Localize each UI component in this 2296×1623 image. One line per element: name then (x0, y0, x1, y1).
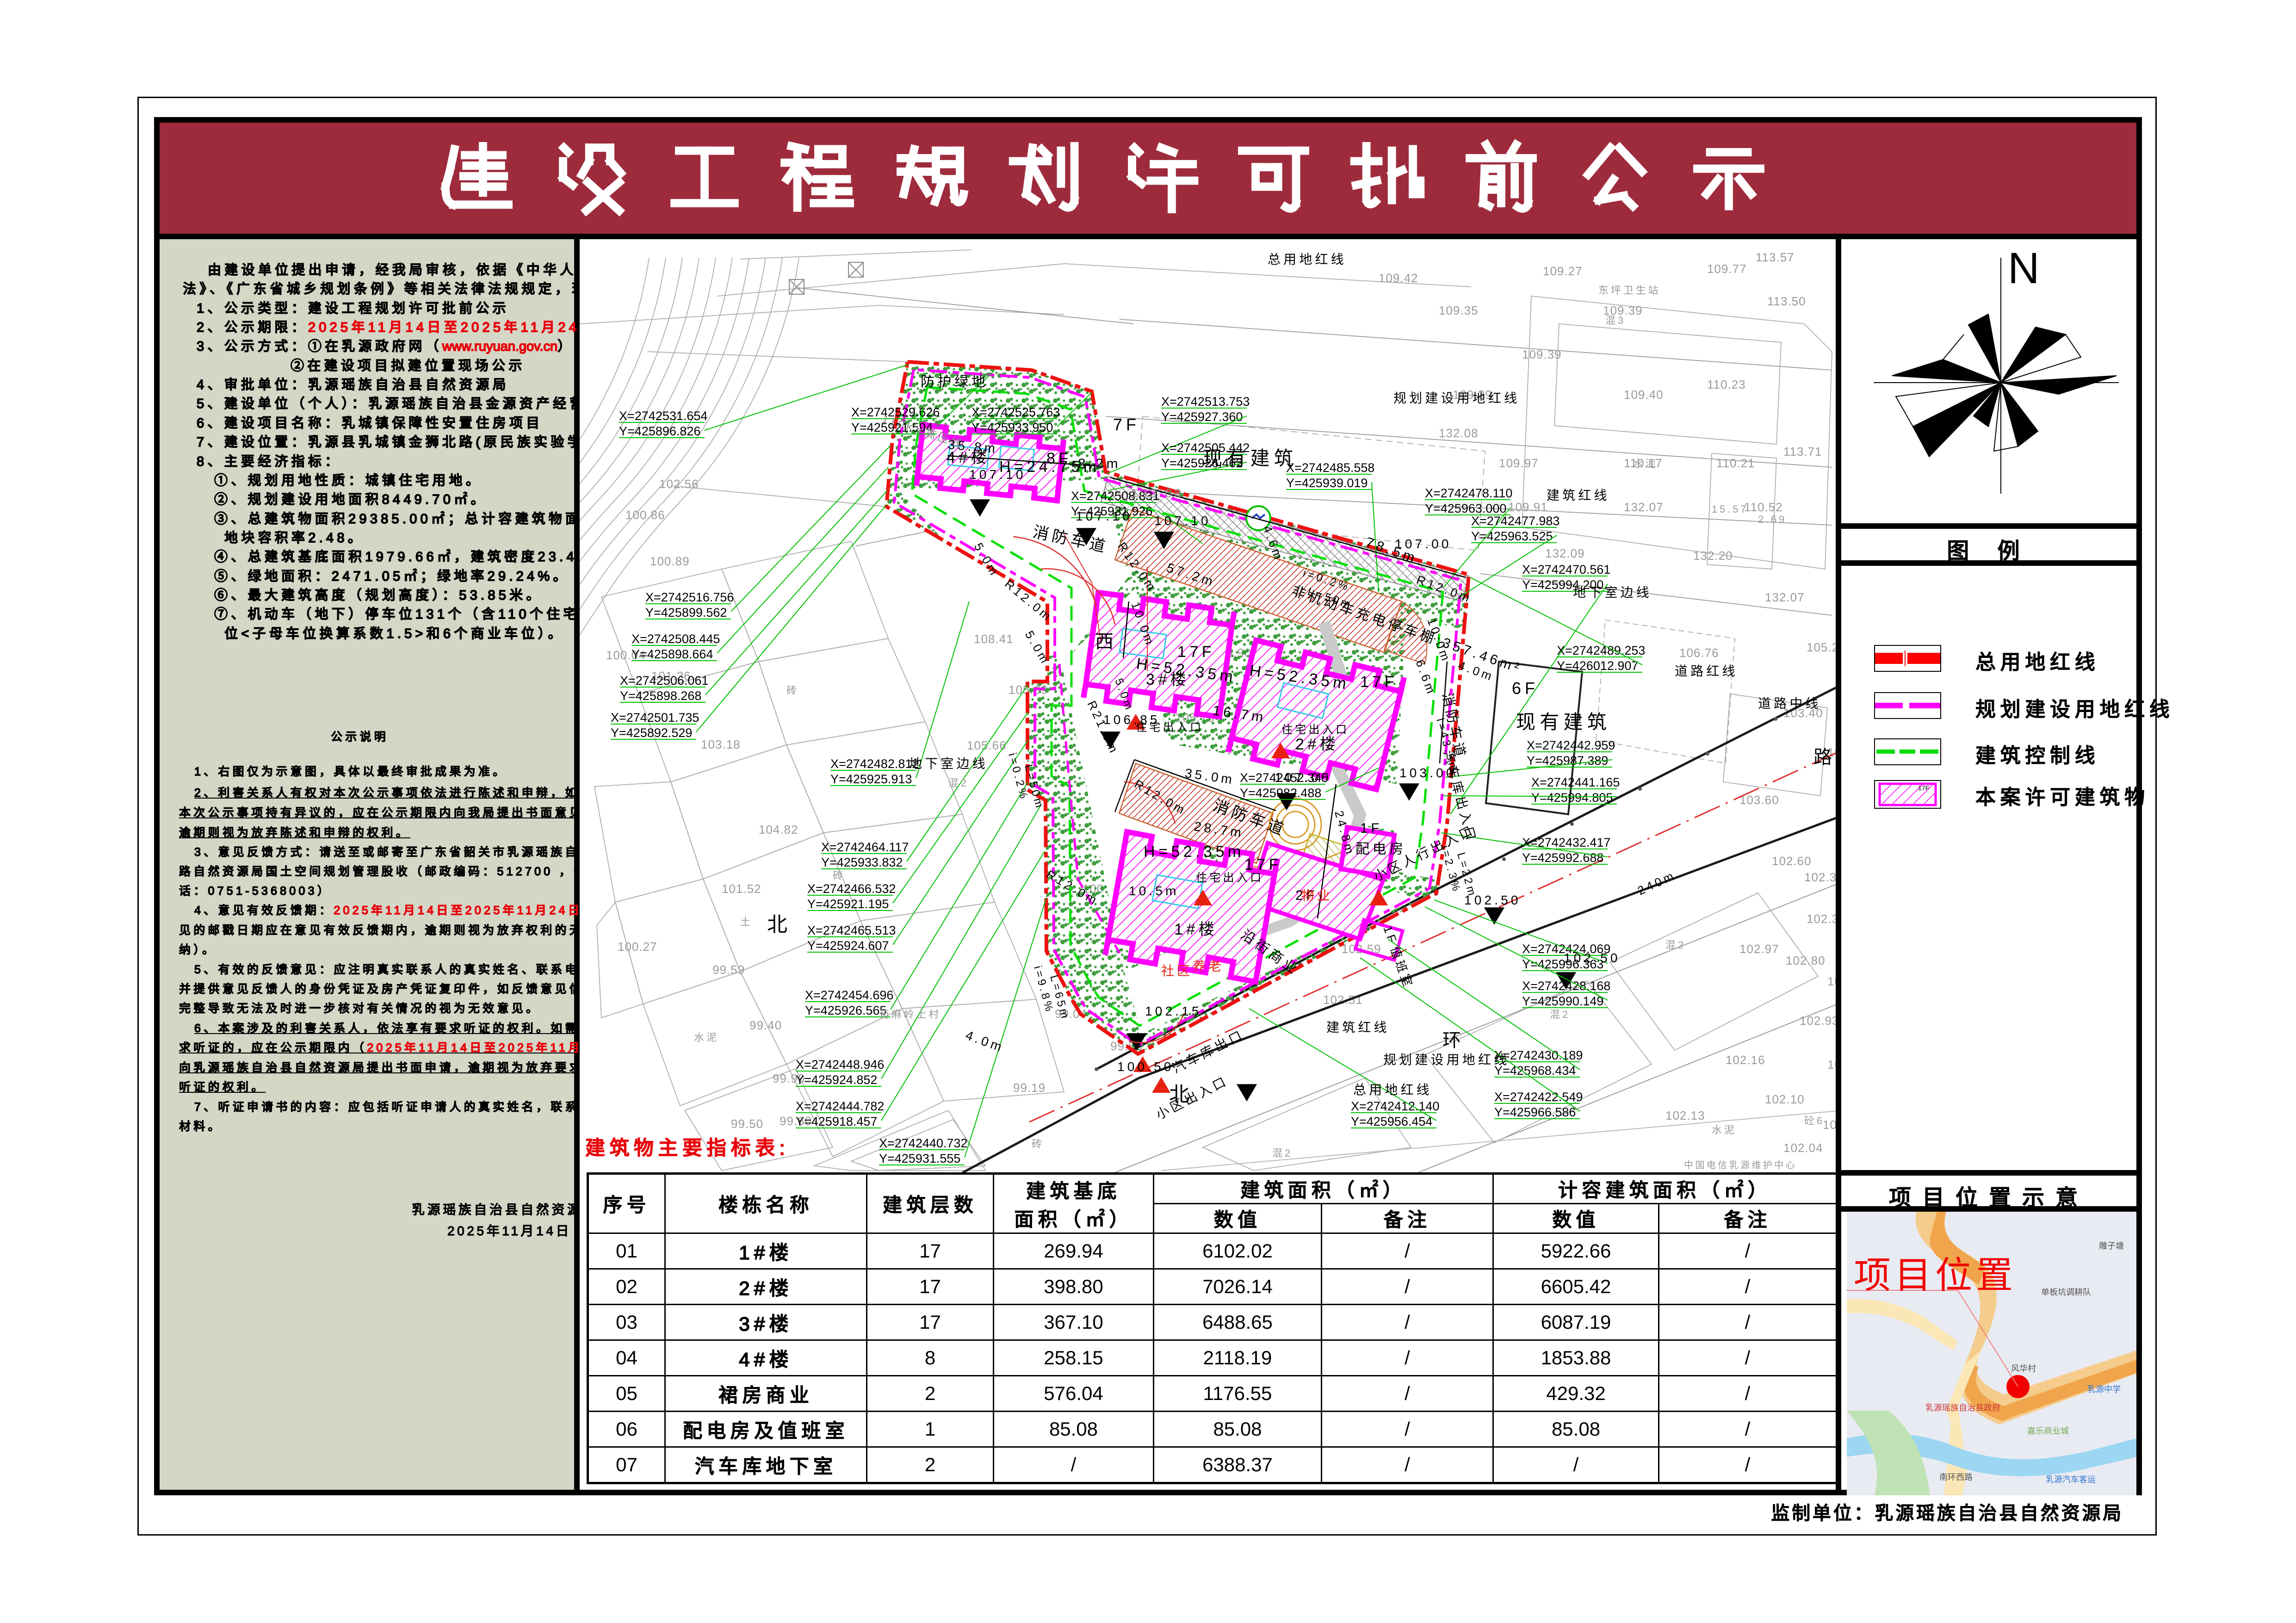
svg-text:2.69: 2.69 (1758, 514, 1787, 525)
svg-text:砖: 砖 (786, 685, 799, 696)
svg-text:107.00: 107.00 (1275, 770, 1331, 785)
svg-text:109.77: 109.77 (1707, 262, 1747, 276)
svg-text:Y=426012.907: Y=426012.907 (1557, 659, 1638, 673)
svg-text:17F: 17F (1360, 673, 1398, 691)
svg-text:混3: 混3 (1605, 315, 1626, 326)
svg-text:住宅出入口: 住宅出入口 (1281, 724, 1349, 736)
svg-text:Y=425899.562: Y=425899.562 (645, 606, 727, 619)
svg-text:10.5m: 10.5m (1129, 884, 1179, 898)
svg-text:混2: 混2 (948, 777, 969, 789)
svg-text:17F: 17F (1177, 643, 1215, 661)
svg-text:乳源瑶族自治县政府: 乳源瑶族自治县政府 (1925, 1403, 2000, 1412)
svg-text:108.41: 108.41 (974, 632, 1014, 646)
svg-text:102.51: 102.51 (1323, 993, 1363, 1007)
svg-text:防护绿地: 防护绿地 (921, 374, 988, 390)
svg-text:102.97: 102.97 (1739, 942, 1779, 956)
svg-text:Y=425927.360: Y=425927.360 (1161, 410, 1243, 424)
svg-text:X=2742454.696: X=2742454.696 (805, 988, 893, 1002)
svg-text:养老: 养老 (1193, 959, 1224, 973)
svg-text:4.0m: 4.0m (964, 1028, 1006, 1055)
svg-text:X=2742432.417: X=2742432.417 (1522, 836, 1610, 849)
svg-text:土: 土 (740, 916, 753, 928)
svg-text:100.50: 100.50 (1117, 1059, 1174, 1074)
svg-text:15.57: 15.57 (1712, 503, 1748, 515)
svg-text:Y=425924.607: Y=425924.607 (807, 939, 889, 953)
svg-text:132.20: 132.20 (1693, 549, 1733, 563)
svg-text:109.27: 109.27 (1543, 264, 1583, 278)
svg-text:嘉乐商业城: 嘉乐商业城 (2027, 1426, 2069, 1436)
svg-text:X=2742516.756: X=2742516.756 (645, 590, 734, 604)
svg-text:南环西路: 南环西路 (1939, 1473, 1973, 1482)
svg-text:Y=425987.389: Y=425987.389 (1527, 754, 1608, 768)
svg-text:X=2742422.549: X=2742422.549 (1494, 1090, 1583, 1104)
svg-text:项目位置: 项目位置 (1854, 1255, 2017, 1296)
svg-text:107.10: 107.10 (1154, 514, 1211, 528)
svg-text:Y=425925.913: Y=425925.913 (830, 772, 912, 786)
svg-text:102.15: 102.15 (1145, 1004, 1202, 1018)
svg-text:102.16: 102.16 (1726, 1053, 1765, 1067)
svg-text:106.85: 106.85 (1103, 712, 1160, 727)
svg-text:109.39: 109.39 (1522, 347, 1562, 361)
svg-text:中国电信乳源维护中心: 中国电信乳源维护中心 (1684, 1160, 1797, 1171)
svg-text:102.13: 102.13 (1665, 1109, 1705, 1122)
svg-text:Y=425966.586: Y=425966.586 (1494, 1105, 1576, 1119)
svg-text:总用地红线: 总用地红线 (1353, 1083, 1432, 1097)
svg-text:102.04: 102.04 (1783, 1141, 1823, 1155)
svg-text:110.52: 110.52 (1744, 500, 1783, 514)
svg-text:Y=425933.832: Y=425933.832 (821, 855, 903, 869)
svg-text:H=52.35m: H=52.35m (1144, 843, 1244, 861)
svg-text:109.91: 109.91 (1508, 500, 1548, 514)
svg-text:X=2742470.561: X=2742470.561 (1522, 563, 1610, 576)
svg-text:17F: 17F (1244, 856, 1282, 873)
svg-text:道路红线: 道路红线 (1675, 664, 1738, 678)
svg-text:X=2742513.753: X=2742513.753 (1161, 395, 1250, 409)
svg-text:X=2742412.140: X=2742412.140 (1351, 1099, 1439, 1113)
svg-text:1#楼: 1#楼 (1174, 921, 1218, 938)
svg-text:7F: 7F (1113, 415, 1140, 434)
svg-text:109.42: 109.42 (1379, 271, 1418, 285)
svg-text:Y=425896.826: Y=425896.826 (619, 424, 700, 438)
svg-text:1F: 1F (1360, 821, 1382, 836)
svg-text:Y=425990.149: Y=425990.149 (1522, 994, 1603, 1008)
svg-text:102.93: 102.93 (1800, 1014, 1839, 1028)
svg-text:100.89: 100.89 (650, 554, 690, 568)
svg-text:单板坑调耕队: 单板坑调耕队 (2041, 1288, 2091, 1297)
svg-text:Y=425963.525: Y=425963.525 (1471, 529, 1553, 543)
svg-text:砖: 砖 (1032, 1138, 1044, 1150)
svg-text:102.50: 102.50 (1564, 951, 1621, 965)
svg-text:X=2742501.735: X=2742501.735 (611, 711, 699, 725)
svg-text:113.57: 113.57 (1756, 250, 1795, 264)
svg-text:风华村: 风华村 (2011, 1364, 2036, 1373)
svg-text:住宅出入口: 住宅出入口 (1196, 872, 1263, 884)
svg-text:102.10: 102.10 (1765, 1092, 1805, 1106)
svg-text:X=2742428.168: X=2742428.168 (1522, 979, 1610, 993)
svg-text:现有建筑: 现有建筑 (1203, 447, 1298, 469)
svg-text:水泥: 水泥 (694, 1032, 719, 1043)
svg-text:102.60: 102.60 (1772, 854, 1812, 868)
svg-text:107.10: 107.10 (969, 467, 1026, 482)
svg-text:Y=425892.529: Y=425892.529 (611, 726, 692, 740)
svg-text:17F: 17F (1918, 784, 1929, 792)
svg-text:100.27: 100.27 (618, 940, 657, 954)
svg-text:X=2742508.445: X=2742508.445 (631, 632, 720, 646)
svg-text:Y=425898.268: Y=425898.268 (620, 689, 701, 703)
svg-text:109.97: 109.97 (1499, 456, 1539, 470)
svg-text:109.40: 109.40 (1624, 388, 1664, 402)
svg-text:X=2742440.732: X=2742440.732 (879, 1136, 967, 1150)
svg-text:西: 西 (1095, 632, 1118, 652)
svg-text:99.59: 99.59 (712, 963, 745, 977)
svg-text:水泥: 水泥 (1633, 458, 1658, 470)
svg-text:107.10: 107.10 (1076, 509, 1133, 523)
svg-text:X=2742485.558: X=2742485.558 (1286, 461, 1374, 475)
svg-text:北: 北 (767, 913, 792, 936)
svg-text:113.71: 113.71 (1783, 445, 1822, 458)
svg-text:Y=425924.852: Y=425924.852 (796, 1073, 877, 1087)
svg-text:Y=425926.565: Y=425926.565 (805, 1004, 886, 1017)
svg-text:Y=425939.019: Y=425939.019 (1286, 476, 1368, 490)
svg-text:Y=425994.805: Y=425994.805 (1531, 791, 1613, 805)
svg-text:混2: 混2 (1550, 1009, 1570, 1020)
svg-text:132.09: 132.09 (1545, 546, 1585, 560)
svg-text:现有建筑: 现有建筑 (1516, 711, 1611, 733)
svg-text:Y=425992.688: Y=425992.688 (1522, 851, 1603, 865)
svg-text:2#楼: 2#楼 (1295, 736, 1339, 753)
svg-text:建筑红线: 建筑红线 (1326, 1020, 1390, 1035)
svg-text:水泥: 水泥 (1712, 1124, 1737, 1136)
svg-text:132.07: 132.07 (1765, 590, 1805, 604)
svg-text:环: 环 (1442, 1030, 1465, 1051)
svg-text:8.2m: 8.2m (1078, 456, 1121, 471)
svg-text:X=2742448.946: X=2742448.946 (796, 1058, 884, 1072)
svg-text:规划建设用地红线: 规划建设用地红线 (1383, 1053, 1510, 1067)
svg-text:道路中线: 道路中线 (1758, 696, 1821, 711)
svg-text:Y=425918.457: Y=425918.457 (796, 1115, 877, 1128)
svg-text:X=2742465.513: X=2742465.513 (807, 923, 896, 937)
svg-text:物业: 物业 (1301, 888, 1332, 903)
svg-text:101.52: 101.52 (722, 882, 761, 896)
svg-text:地下室边线: 地下室边线 (909, 756, 988, 771)
svg-text:汽车库出口: 汽车库出口 (1170, 1027, 1247, 1076)
svg-text:东坪卫生站: 东坪卫生站 (1598, 285, 1660, 296)
svg-text:240m: 240m (1635, 868, 1678, 898)
svg-text:砼6: 砼6 (1804, 1115, 1825, 1127)
svg-text:102.56: 102.56 (659, 477, 699, 491)
svg-text:X=2742489.253: X=2742489.253 (1557, 644, 1645, 657)
svg-text:X=2742482.812: X=2742482.812 (830, 757, 919, 771)
svg-text:100.86: 100.86 (625, 508, 665, 522)
svg-text:132.08: 132.08 (1439, 426, 1479, 440)
svg-text:109.35: 109.35 (1439, 304, 1479, 317)
svg-text:建筑红线: 建筑红线 (1547, 488, 1610, 502)
svg-text:N: N (2008, 244, 2040, 293)
svg-text:X=2742478.110: X=2742478.110 (1425, 486, 1512, 500)
svg-text:106.76: 106.76 (1679, 646, 1719, 660)
svg-text:X=2742477.983: X=2742477.983 (1471, 514, 1560, 528)
svg-text:6F: 6F (1512, 679, 1539, 698)
svg-text:Y=425956.454: Y=425956.454 (1351, 1115, 1432, 1128)
svg-text:X=2742441.165: X=2742441.165 (1531, 775, 1620, 789)
svg-text:110.23: 110.23 (1707, 378, 1746, 391)
svg-text:3#楼: 3#楼 (1146, 671, 1189, 688)
svg-text:102.80: 102.80 (1786, 954, 1826, 967)
svg-text:107.00: 107.00 (1395, 537, 1452, 551)
svg-text:1F: 1F (1380, 924, 1400, 947)
svg-text:Y=425933.950: Y=425933.950 (972, 421, 1053, 434)
svg-text:北: 北 (1169, 1083, 1194, 1106)
svg-text:X=2742444.782: X=2742444.782 (796, 1099, 884, 1113)
svg-text:社区: 社区 (1161, 964, 1193, 978)
svg-text:103.18: 103.18 (701, 737, 741, 751)
svg-text:乳源汽车客运: 乳源汽车客运 (2046, 1475, 2096, 1484)
svg-text:99.50: 99.50 (731, 1117, 763, 1131)
svg-text:X=2742531.654: X=2742531.654 (619, 409, 707, 423)
svg-text:113.50: 113.50 (1767, 294, 1806, 308)
svg-text:配电房: 配电房 (1355, 842, 1406, 857)
svg-text:混2: 混2 (1272, 1147, 1293, 1159)
svg-text:荀麻岭上村: 荀麻岭上村 (879, 1009, 941, 1020)
svg-text:X=2742506.061: X=2742506.061 (620, 674, 708, 688)
svg-text:132.07: 132.07 (1624, 500, 1664, 514)
svg-text:X=2742466.532: X=2742466.532 (807, 882, 896, 896)
svg-text:Y=425963.000: Y=425963.000 (1425, 502, 1506, 515)
svg-text:104.82: 104.82 (759, 823, 798, 836)
svg-text:Y=425921.195: Y=425921.195 (807, 897, 889, 911)
svg-text:砖: 砖 (833, 870, 845, 881)
svg-text:路: 路 (1813, 747, 1836, 768)
svg-text:雕子塘: 雕子塘 (2099, 1241, 2124, 1251)
svg-text:X=2742442.959: X=2742442.959 (1527, 738, 1615, 752)
svg-text:Y=425931.555: Y=425931.555 (879, 1152, 960, 1165)
svg-text:8F: 8F (1046, 450, 1072, 467)
svg-text:110.21: 110.21 (1716, 456, 1755, 470)
svg-text:X=2742525.763: X=2742525.763 (972, 405, 1060, 419)
svg-text:Y=425982.488: Y=425982.488 (1240, 786, 1321, 800)
svg-text:99.40: 99.40 (749, 1018, 782, 1032)
svg-text:总用地红线: 总用地红线 (1268, 252, 1347, 266)
svg-text:规划建设用地红线: 规划建设用地红线 (1393, 391, 1520, 405)
svg-text:X=2742464.117: X=2742464.117 (821, 840, 909, 854)
svg-text:乳源中学: 乳源中学 (2087, 1385, 2121, 1394)
svg-text:地下室边线: 地下室边线 (1573, 585, 1652, 600)
svg-text:99.19: 99.19 (1013, 1081, 1046, 1095)
svg-text:132.08: 132.08 (1131, 486, 1184, 500)
svg-text:混2: 混2 (1665, 939, 1686, 951)
svg-text:Y=425898.664: Y=425898.664 (631, 647, 713, 661)
